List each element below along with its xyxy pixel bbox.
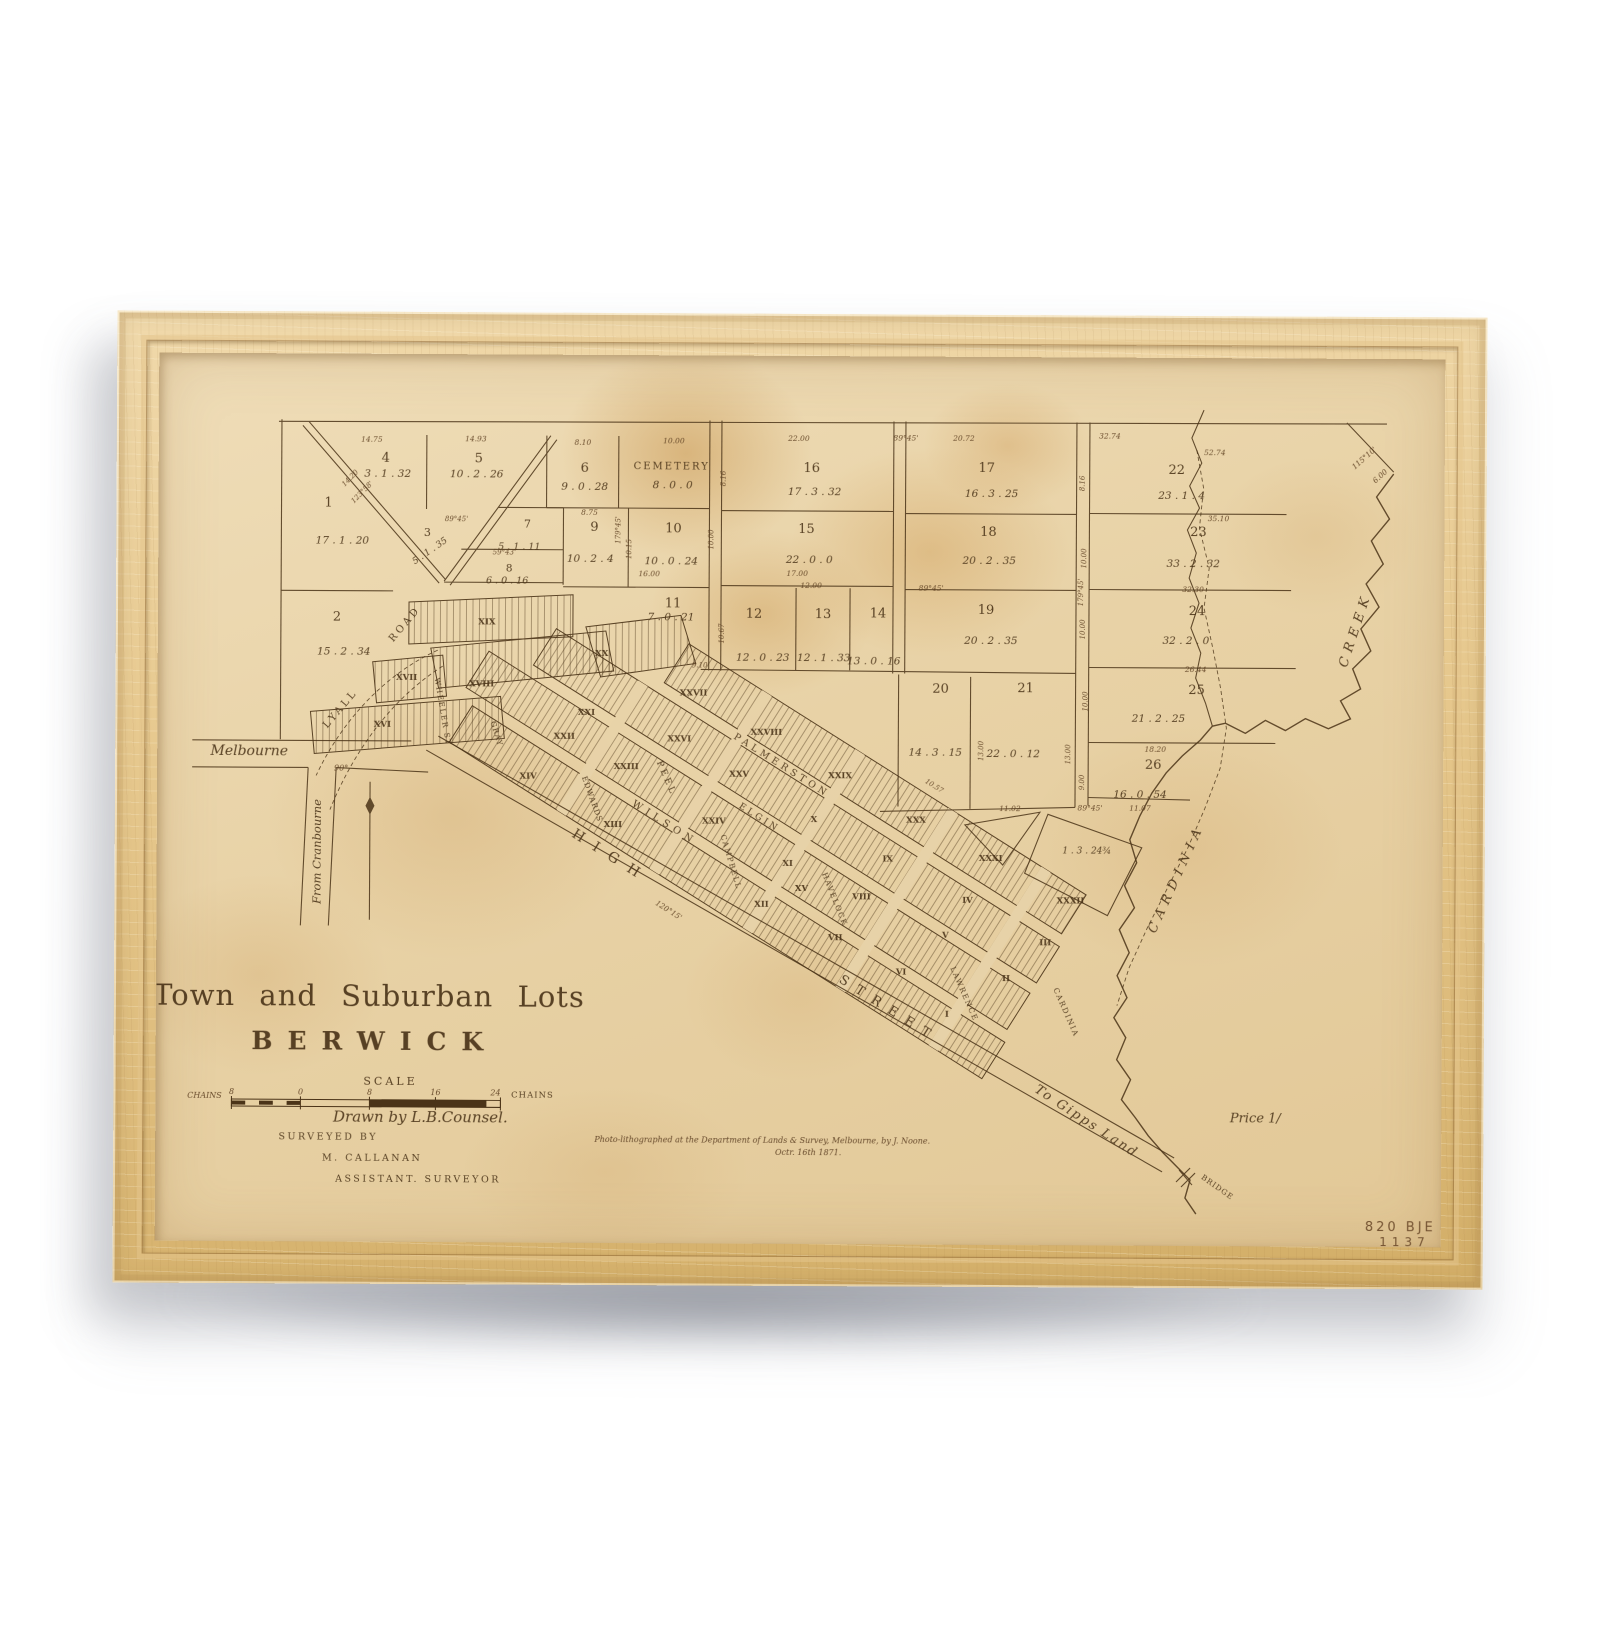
block-numeral: XXIV: [702, 816, 726, 826]
lot-area: 33 . 2 . 32: [1166, 558, 1220, 570]
block-numeral: XIV: [520, 772, 538, 782]
block-numeral: XX: [595, 649, 609, 659]
lot-area: 16 . 0 . 54: [1113, 789, 1166, 801]
lot-area: 3 . 1 . 32: [364, 468, 411, 480]
imprint-line: Photo-lithographed at the Department of …: [593, 1135, 930, 1146]
lot-area: 8 . 0 . 0: [653, 479, 693, 491]
block-numeral: XVI: [374, 720, 391, 730]
survey-measurement: 120°15': [654, 898, 684, 921]
lot-number: 12: [746, 607, 763, 622]
survey-measurement: 32.30: [1182, 585, 1204, 594]
block-numeral: XXV: [729, 770, 749, 780]
lot-number: 2: [333, 610, 341, 625]
block-numeral: XXXII: [1057, 896, 1085, 906]
survey-measurement: 89°45': [1077, 803, 1102, 812]
survey-measurement: 89°45': [445, 515, 468, 523]
survey-measurement: 13.00: [977, 740, 985, 761]
lot-number: 20: [932, 682, 949, 697]
caps-label: BRIDGE: [1199, 1173, 1235, 1202]
survey-measurement: 26.44: [1184, 665, 1207, 674]
block-numeral: IV: [962, 896, 973, 906]
lot-area: 9 . 0 . 28: [561, 481, 608, 493]
survey-measurement: 89°45': [893, 433, 918, 442]
lot-area: 17 . 3 . 32: [788, 486, 842, 498]
block-numeral: XXIX: [828, 771, 852, 781]
catalog-number: 820 BJE: [1365, 1220, 1436, 1235]
lot-number: 18: [980, 525, 997, 540]
survey-measurement: 59°43': [493, 548, 516, 556]
script-label: From Cranbourne: [309, 799, 324, 905]
survey-measurement: 12.00: [800, 581, 822, 590]
caps-label: M. CALLANAN: [322, 1153, 422, 1165]
survey-measurement: 0: [298, 1087, 303, 1096]
survey-measurement: 179°45': [1077, 579, 1085, 607]
lot-number: 22: [1168, 463, 1185, 478]
survey-measurement: 32.74: [1099, 432, 1121, 441]
survey-measurement: 13.00: [1064, 744, 1072, 765]
lot-area: 23 . 1 . 4: [1157, 490, 1205, 502]
cardinia-creek: [1113, 410, 1394, 1215]
lot-area: 1 . 3 . 24¾: [1062, 845, 1111, 856]
map-labels: Town and Suburban LotsBERWICKSCALECHAINS…: [155, 427, 1440, 1248]
lot-area: 7 . 0 . 21: [648, 611, 695, 623]
block-numeral: XIII: [604, 820, 623, 830]
lot-area: 13 . 0 . 16: [847, 655, 901, 667]
survey-measurement: 10.00: [1080, 548, 1088, 569]
lot-number: 19: [978, 603, 995, 618]
lot-number: 9: [590, 520, 598, 535]
lot-number: 8: [506, 562, 513, 574]
survey-measurement: 8.10: [574, 438, 591, 447]
imprint-line: Octr. 16th 1871.: [775, 1148, 841, 1157]
lot-number: 21: [1017, 681, 1034, 696]
lot-number: 23: [1190, 525, 1207, 540]
survey-measurement: CHAINS: [187, 1091, 222, 1100]
block-numeral: X: [811, 815, 818, 825]
lot-number: 1: [324, 496, 332, 511]
survey-measurement: 14.75: [361, 435, 383, 444]
script-label: Drawn by L.B.Counsel.: [332, 1108, 508, 1127]
map-title: Town and Suburban Lots: [155, 978, 585, 1014]
survey-measurement: 24: [489, 1088, 500, 1097]
lot-number: 3: [424, 526, 431, 539]
survey-measurement: 8.75: [581, 508, 598, 517]
block-numeral: XVII: [396, 673, 417, 683]
lot-area: 14 . 3 . 15: [908, 747, 962, 759]
block-numeral: XVIII: [469, 679, 494, 689]
survey-measurement: 16.00: [638, 569, 660, 578]
survey-measurement: 10.00: [1081, 691, 1089, 712]
berwick-map-svg: Town and Suburban LotsBERWICKSCALECHAINS…: [155, 353, 1446, 1248]
block-numeral: XXX: [906, 816, 926, 826]
block-numeral: XXI: [578, 708, 595, 718]
block-numeral: XXVI: [667, 734, 691, 744]
creek-label: CREEK: [1336, 590, 1375, 669]
lot-number: 10: [665, 521, 682, 536]
framed-map-photo: Town and Suburban LotsBERWICKSCALECHAINS…: [40, 16, 1600, 1616]
lot-area: 17 . 1 . 20: [316, 534, 370, 546]
lot-area: 20 . 2 . 35: [963, 635, 1018, 647]
lot-number: 17: [978, 461, 995, 476]
lot-area: 6 . 0 . 16: [486, 575, 528, 586]
lot-number: 14: [870, 606, 887, 621]
lot-area: 16 . 3 . 25: [965, 488, 1019, 500]
block-numeral: VI: [895, 967, 907, 977]
caps-label: CEMETERY: [634, 461, 710, 472]
block-numeral: III: [1039, 938, 1051, 948]
lot-area: 15 . 2 . 34: [317, 645, 370, 657]
survey-measurement: 9.00: [1078, 774, 1086, 790]
survey-measurement: 10.67: [718, 623, 726, 644]
picture-frame: Town and Suburban LotsBERWICKSCALECHAINS…: [112, 310, 1487, 1289]
lot-area: 32 . 2 . 0: [1162, 635, 1209, 647]
lot-number: 16: [803, 461, 820, 476]
block-numeral: II: [1002, 974, 1010, 984]
lot-number: 4: [382, 451, 390, 466]
block-numeral: XXIII: [614, 762, 639, 772]
street-label: CARDINIA: [1051, 986, 1080, 1038]
caps-label: ASSISTANT. SURVEYOR: [334, 1174, 501, 1186]
lot-number: 7: [524, 518, 531, 531]
lot-number: 15: [798, 522, 815, 537]
block-numeral: V: [941, 931, 949, 941]
survey-measurement: 52.74: [1204, 448, 1226, 457]
caps-label: CHAINS: [511, 1090, 554, 1100]
survey-measurement: 10.57: [924, 777, 946, 795]
block-numeral: XXXI: [979, 854, 1003, 864]
survey-measurement: 8: [367, 1088, 372, 1097]
lot-area: 22 . 0 . 12: [985, 748, 1040, 760]
lot-area: 12 . 0 . 23: [736, 652, 790, 664]
block-numeral: I: [945, 1010, 949, 1020]
lot-number: 11: [665, 596, 682, 611]
lot-number: 13: [815, 607, 832, 622]
creek-label: CARDINIA: [1145, 821, 1207, 935]
survey-measurement: 35.10: [1208, 514, 1230, 523]
block-numeral: XXVIII: [750, 728, 782, 738]
script-label: Price 1/: [1229, 1111, 1283, 1126]
block-numeral: XXII: [554, 732, 575, 742]
block-numeral: VII: [827, 933, 843, 943]
lot-area: 10 . 2 . 4: [567, 553, 614, 565]
lot-number: 24: [1189, 604, 1206, 619]
lot-number: 5: [475, 451, 483, 466]
map-subtitle: BERWICK: [251, 1026, 498, 1056]
survey-measurement: 11.02: [999, 804, 1021, 813]
survey-measurement: 8: [229, 1087, 234, 1096]
block-numeral: XI: [782, 859, 793, 869]
survey-measurement: 9.10: [692, 661, 708, 669]
survey-measurement: 179°45': [614, 516, 622, 544]
survey-measurement: 18.20: [1145, 745, 1167, 754]
lot-area: 10 . 2 . 26: [450, 468, 504, 480]
survey-measurement: 11.07: [1129, 804, 1151, 813]
lot-number: 6: [581, 461, 589, 476]
survey-measurement: 115°10': [1350, 445, 1378, 471]
block-numeral: XXVII: [680, 688, 708, 698]
map-paper: Town and Suburban LotsBERWICKSCALECHAINS…: [155, 353, 1446, 1248]
lot-area: 10 . 0 . 24: [644, 555, 697, 567]
script-label: Melbourne: [209, 743, 288, 759]
survey-measurement: 22.00: [787, 434, 810, 443]
block-numeral: IX: [882, 854, 893, 864]
survey-measurement: 8.16: [1079, 475, 1087, 491]
lot-number: 26: [1145, 758, 1162, 773]
caps-label: SURVEYED BY: [278, 1131, 378, 1143]
survey-measurement: 10.00: [663, 436, 685, 445]
survey-measurement: 10.15: [625, 539, 633, 560]
block-numeral: XIX: [478, 617, 496, 627]
survey-measurement: 14.93: [465, 434, 487, 443]
lot-area: 12 . 1 . 33: [797, 652, 851, 664]
block-numeral: VIII: [851, 892, 871, 902]
lot-number: 25: [1188, 683, 1205, 698]
survey-measurement: 8.16: [720, 470, 728, 486]
survey-measurement: 17.00: [786, 569, 808, 578]
block-numeral: XII: [754, 900, 769, 910]
block-numeral: XV: [795, 884, 809, 894]
survey-measurement: 90°: [334, 764, 348, 773]
survey-measurement: 20.72: [952, 434, 975, 443]
survey-measurement: 6.00: [1371, 467, 1390, 485]
lot-area: 21 . 2 . 25: [1131, 713, 1186, 725]
lot-area: 22 . 0 . 0: [785, 554, 833, 566]
catalog-number: 1137: [1379, 1235, 1430, 1247]
survey-measurement: 10.00: [707, 529, 715, 550]
survey-measurement: 89°45': [919, 584, 944, 593]
survey-measurement: 10.00: [1079, 619, 1087, 640]
caps-label: SCALE: [363, 1075, 417, 1088]
survey-measurement: 16: [430, 1088, 440, 1097]
lot-area: 20 . 2 . 35: [962, 555, 1017, 567]
